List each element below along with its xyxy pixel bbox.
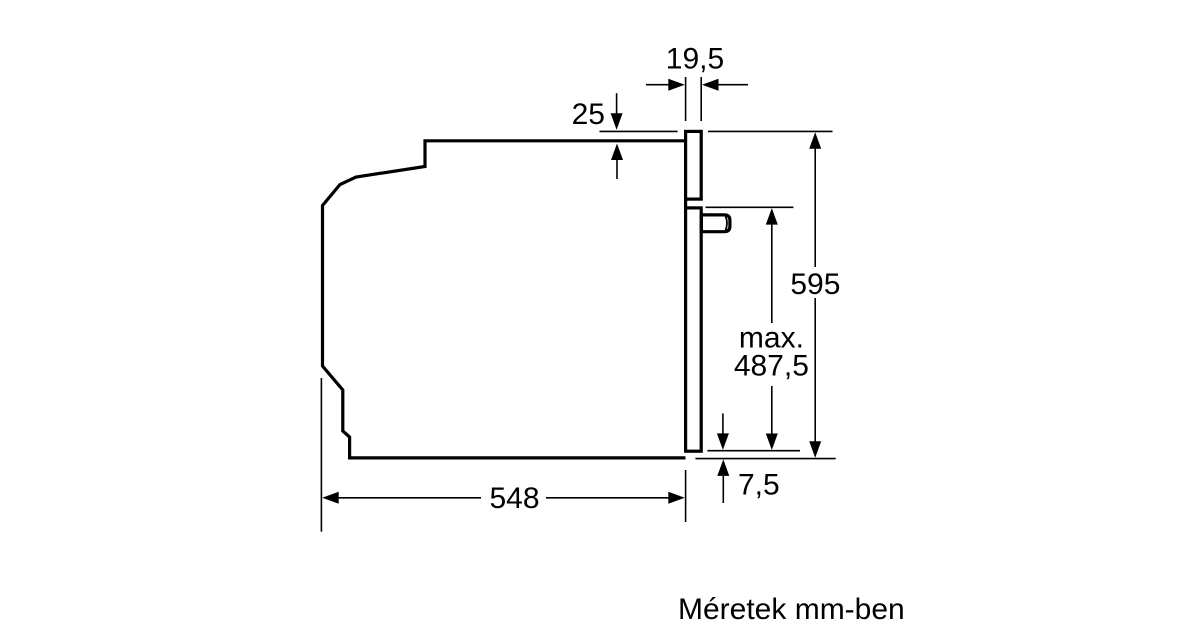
svg-text:19,5: 19,5	[666, 43, 724, 76]
svg-text:7,5: 7,5	[738, 469, 780, 502]
svg-text:487,5: 487,5	[734, 350, 809, 383]
svg-text:595: 595	[790, 268, 840, 301]
svg-text:Méretek mm-ben: Méretek mm-ben	[678, 593, 905, 626]
svg-text:548: 548	[489, 482, 539, 515]
svg-text:25: 25	[572, 98, 605, 131]
